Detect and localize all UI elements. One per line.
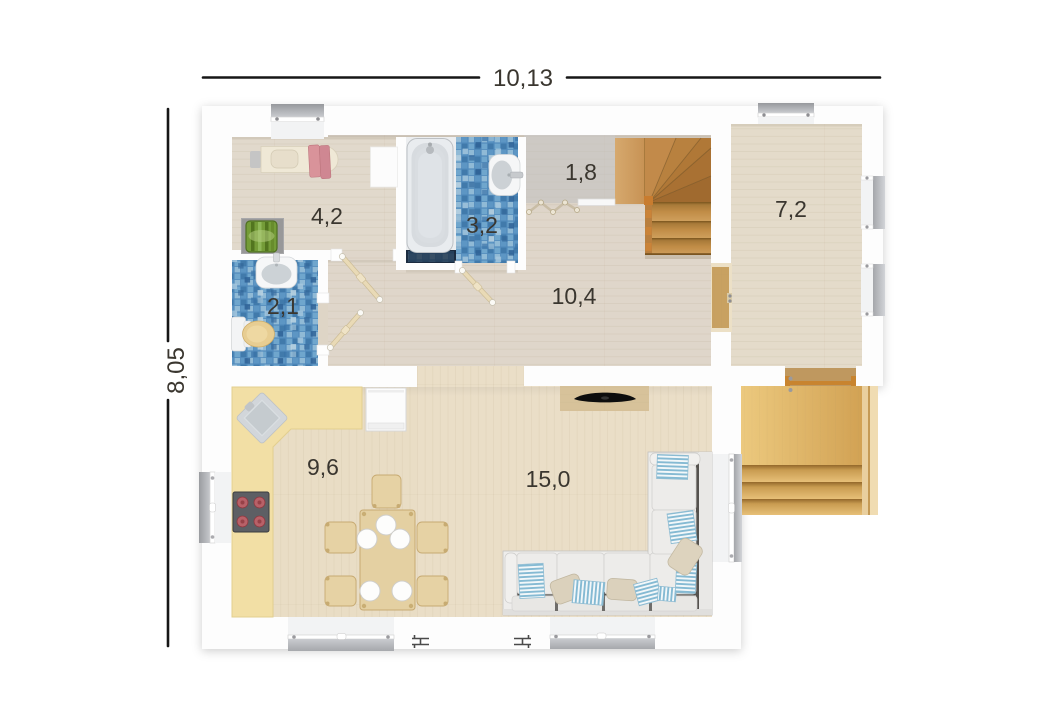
svg-text:10,4: 10,4 xyxy=(552,283,597,309)
svg-text:8,05: 8,05 xyxy=(163,347,190,394)
svg-text:10,13: 10,13 xyxy=(493,65,553,92)
svg-text:15,0: 15,0 xyxy=(526,466,571,492)
svg-text:9,6: 9,6 xyxy=(307,454,339,480)
svg-text:3,2: 3,2 xyxy=(466,212,498,238)
svg-text:1,8: 1,8 xyxy=(565,159,597,185)
svg-text:4,2: 4,2 xyxy=(311,203,343,229)
svg-text:7,2: 7,2 xyxy=(775,196,807,222)
svg-text:2,1: 2,1 xyxy=(267,293,299,319)
